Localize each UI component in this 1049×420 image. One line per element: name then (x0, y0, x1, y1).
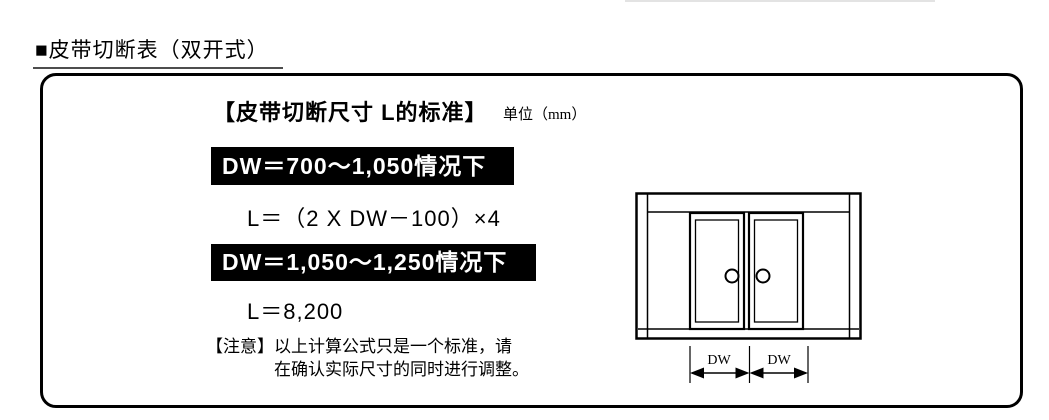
condition-banner-2: DW＝1,050～1,250情况下 (211, 244, 536, 281)
dw-dimension-arrow-left (690, 368, 750, 379)
left-door-handle-icon (726, 270, 739, 283)
scanned-manual-page: ■皮带切断表（双开式） 【皮带切断尺寸 L的标准】 单位（mm） DW＝700～… (0, 0, 1049, 420)
section-title: ■皮带切断表（双开式） (33, 34, 283, 69)
caution-note-line2: 在确认实际尺寸的同时进行调整。 (274, 360, 529, 379)
scan-artifact-line (625, 0, 935, 2)
dw-label-left: DW (707, 353, 731, 368)
dw-label-right: DW (767, 353, 791, 368)
formula-2: L＝8,200 (247, 294, 343, 326)
panel-heading: 【皮带切断尺寸 L的标准】 (213, 95, 488, 127)
right-door-handle-icon (757, 270, 770, 283)
condition-banner-1: DW＝700～1,050情况下 (211, 147, 514, 185)
caution-note-line1: 以上计算公式只是一个标准，请 (274, 337, 512, 356)
caution-note-text: 以上计算公式只是一个标准，请 在确认实际尺寸的同时进行调整。 (274, 335, 529, 381)
unit-label: 单位（mm） (503, 103, 586, 124)
right-door-panel (749, 213, 803, 329)
info-panel: 【皮带切断尺寸 L的标准】 单位（mm） DW＝700～1,050情况下 L＝（… (40, 73, 1023, 408)
double-door-diagram: DW DW (628, 188, 873, 393)
caution-note-label: 【注意】 (206, 335, 274, 381)
caution-note: 【注意】 以上计算公式只是一个标准，请 在确认实际尺寸的同时进行调整。 (206, 335, 529, 381)
formula-1: L＝（2 X DW－100）×4 (247, 201, 501, 233)
dw-dimension-arrow-right (750, 368, 809, 379)
